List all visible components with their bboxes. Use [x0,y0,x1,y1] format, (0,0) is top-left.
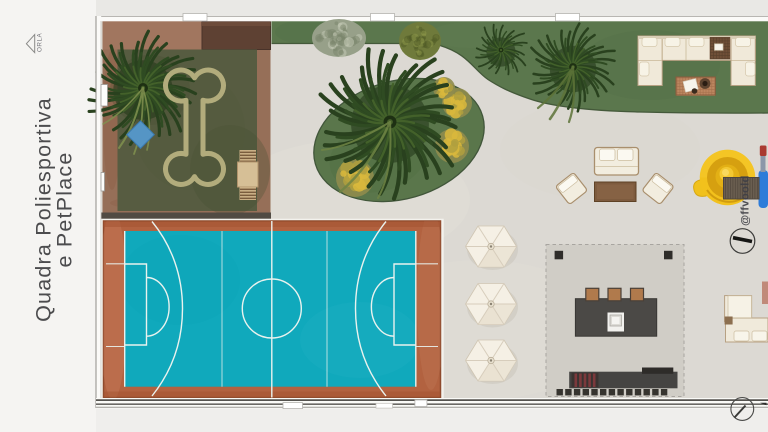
svg-text:@ffvoold: @ffvoold [740,175,752,226]
svg-text:ORLA: ORLA [37,33,44,52]
